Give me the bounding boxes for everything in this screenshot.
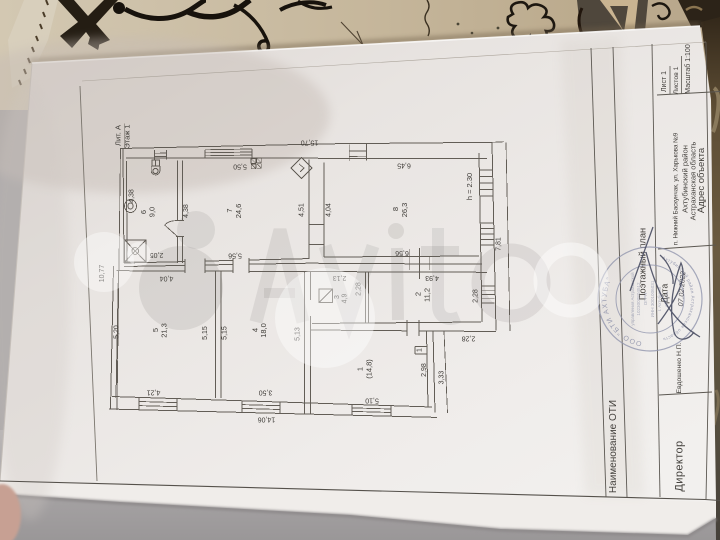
svg-text:п. Нижний Баскунчак, ул. Харьк: п. Нижний Баскунчак, ул. Харькова №9 — [673, 132, 680, 245]
svg-text:5,15: 5,15 — [222, 326, 229, 340]
svg-text:5,20: 5,20 — [114, 325, 121, 339]
svg-text:1: 1 — [417, 348, 424, 352]
svg-text:Наименование ОТИ: Наименование ОТИ — [608, 400, 619, 493]
svg-text:5,15: 5,15 — [202, 326, 209, 340]
svg-text:4,38: 4,38 — [129, 189, 136, 203]
svg-text:h = 2.30: h = 2.30 — [465, 173, 474, 200]
svg-text:7: 7 — [225, 208, 234, 212]
svg-text:2,98: 2,98 — [421, 363, 428, 377]
svg-text:Листов 1: Листов 1 — [673, 66, 680, 94]
svg-text:18,0: 18,0 — [259, 323, 268, 338]
svg-text:1023000804512: 1023000804512 — [636, 282, 641, 316]
svg-text:15,70: 15,70 — [301, 139, 319, 146]
svg-text:4,04: 4,04 — [326, 203, 333, 217]
svg-text:ИНН 3001006031: ИНН 3001006031 — [650, 280, 655, 317]
svg-text:Астраханская область: Астраханская область — [689, 142, 698, 221]
svg-text:Адрес объекта: Адрес объекта — [696, 147, 707, 213]
svg-text:Лит. А: Лит. А — [114, 125, 123, 146]
svg-text:24,6: 24,6 — [234, 204, 243, 219]
svg-text:1: 1 — [356, 367, 365, 371]
svg-text:Этаж 1: Этаж 1 — [123, 124, 132, 148]
svg-text:9,0: 9,0 — [148, 207, 157, 217]
svg-text:5,50: 5,50 — [233, 163, 247, 170]
svg-text:8: 8 — [391, 207, 400, 211]
svg-text:5,56: 5,56 — [228, 252, 242, 259]
svg-text:26,3: 26,3 — [400, 203, 409, 218]
svg-text:3,33: 3,33 — [439, 371, 446, 385]
svg-text:4,21: 4,21 — [147, 389, 161, 396]
svg-text:ОГРН: ОГРН — [643, 293, 648, 305]
svg-text:5,10: 5,10 — [365, 397, 379, 404]
svg-text:2: 2 — [414, 292, 423, 296]
svg-text:Ахтубинский район: Ахтубинский район — [681, 145, 690, 213]
svg-text:14,06: 14,06 — [258, 416, 276, 423]
svg-text:4,51: 4,51 — [299, 203, 306, 217]
svg-text:Масштаб 1:100: Масштаб 1:100 — [684, 44, 692, 94]
svg-text:11,2: 11,2 — [423, 288, 432, 302]
svg-text:6,45: 6,45 — [397, 162, 411, 169]
svg-text:Лист 1: Лист 1 — [661, 71, 668, 92]
svg-text:Директор: Директор — [674, 440, 686, 491]
svg-text:Евдошенко Н.П.: Евдошенко Н.П. — [676, 342, 683, 393]
svg-text:3,50: 3,50 — [259, 389, 273, 396]
svg-text:2,28: 2,28 — [462, 335, 476, 342]
svg-text:(14,8): (14,8) — [365, 359, 374, 379]
